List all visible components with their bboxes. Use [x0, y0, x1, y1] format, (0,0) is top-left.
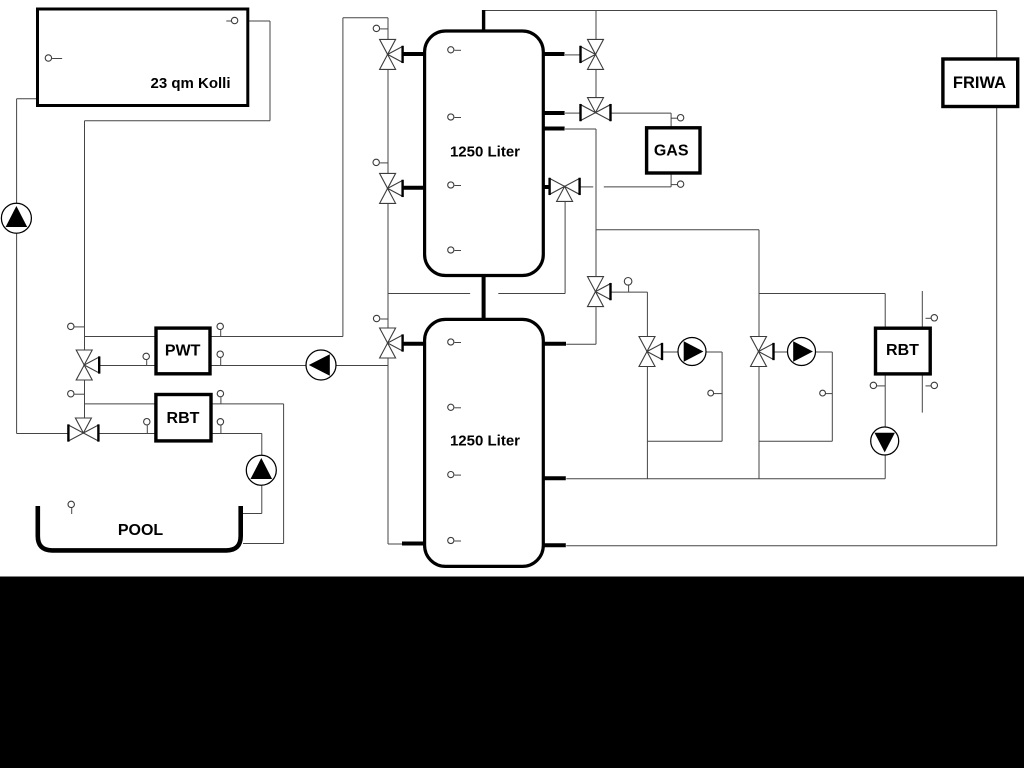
svg-text:PWT: PWT: [165, 343, 201, 360]
svg-text:23 qm Kolli: 23 qm Kolli: [150, 75, 230, 92]
svg-text:1250 Liter: 1250 Liter: [450, 144, 520, 161]
svg-text:RBT: RBT: [886, 342, 919, 359]
svg-text:RBT: RBT: [167, 410, 200, 427]
svg-text:POOL: POOL: [118, 522, 164, 539]
svg-text:GAS: GAS: [654, 143, 689, 160]
svg-text:FRIWA: FRIWA: [953, 74, 1006, 92]
svg-text:1250 Liter: 1250 Liter: [450, 433, 520, 450]
